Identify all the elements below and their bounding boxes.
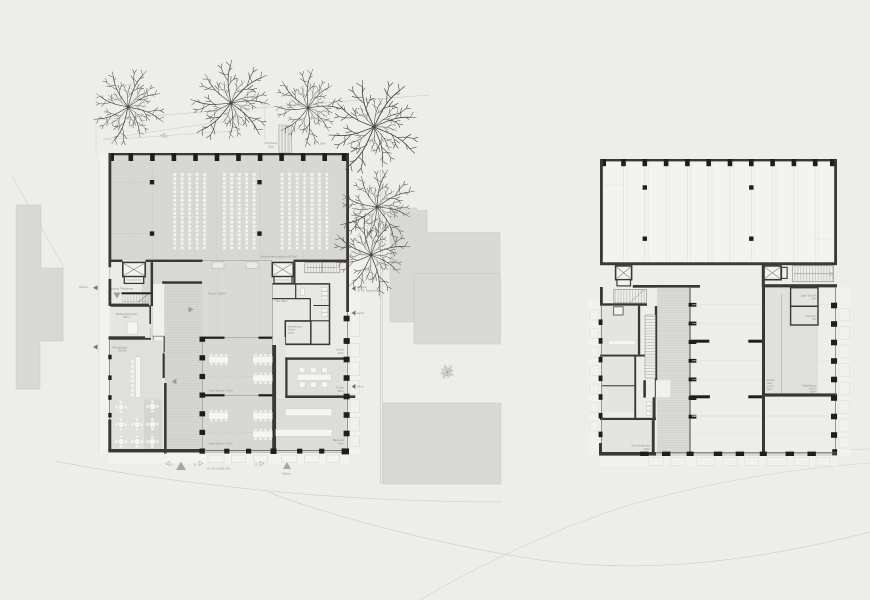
svg-text:Café Herren 73m²: Café Herren 73m²	[209, 442, 233, 446]
svg-text:101m²: 101m²	[118, 349, 126, 353]
svg-text:34m²: 34m²	[767, 388, 773, 391]
svg-text:Café Damen 71m²: Café Damen 71m²	[209, 389, 233, 393]
svg-text:Abgang Tiefgarage: Abgang Tiefgarage	[110, 286, 134, 290]
svg-text:Abstell-: Abstell-	[767, 379, 776, 382]
svg-text:23m²: 23m²	[123, 315, 129, 319]
svg-text:15m²: 15m²	[288, 332, 294, 335]
svg-text:GFTB, Tagespflege: GFTB, Tagespflege	[357, 289, 381, 292]
svg-text:42m²: 42m²	[810, 391, 816, 394]
svg-text:9m²: 9m²	[812, 298, 817, 301]
svg-text:Bäcker: Bäcker	[283, 472, 292, 476]
svg-text:Frisör: Frisör	[357, 386, 364, 389]
svg-text:73m²: 73m²	[337, 441, 344, 445]
svg-text:Foyer 122m²: Foyer 122m²	[208, 292, 226, 296]
svg-text:34m²: 34m²	[337, 351, 344, 355]
svg-text:Multifunktionsraum 427m²: Multifunktionsraum 427m²	[261, 255, 298, 259]
svg-text:raum: raum	[767, 382, 773, 385]
svg-text:±0.00 = 1626.NN.: ±0.00 = 1626.NN.	[207, 467, 231, 471]
svg-text:39m²: 39m²	[337, 389, 344, 393]
svg-text:E: E	[256, 462, 258, 466]
svg-text:+ 1.00m: + 1.00m	[315, 142, 326, 146]
svg-text:Küche: Küche	[336, 347, 345, 351]
svg-text:Saal: Saal	[268, 144, 274, 148]
svg-text:WC 36m²: WC 36m²	[276, 299, 289, 303]
svg-text:Küche: Küche	[357, 312, 365, 315]
svg-text:110m²: 110m²	[643, 448, 650, 451]
svg-text:zu 2.0: zu 2.0	[767, 386, 774, 388]
svg-text:Wohnen: Wohnen	[79, 286, 89, 289]
svg-text:Restaurantküche: Restaurantküche	[116, 312, 138, 316]
svg-text:Frisör: Frisör	[337, 385, 344, 389]
svg-text:9m²: 9m²	[812, 318, 817, 321]
svg-text:Bäckerei: Bäckerei	[333, 438, 345, 442]
svg-text:B: B	[195, 462, 197, 466]
